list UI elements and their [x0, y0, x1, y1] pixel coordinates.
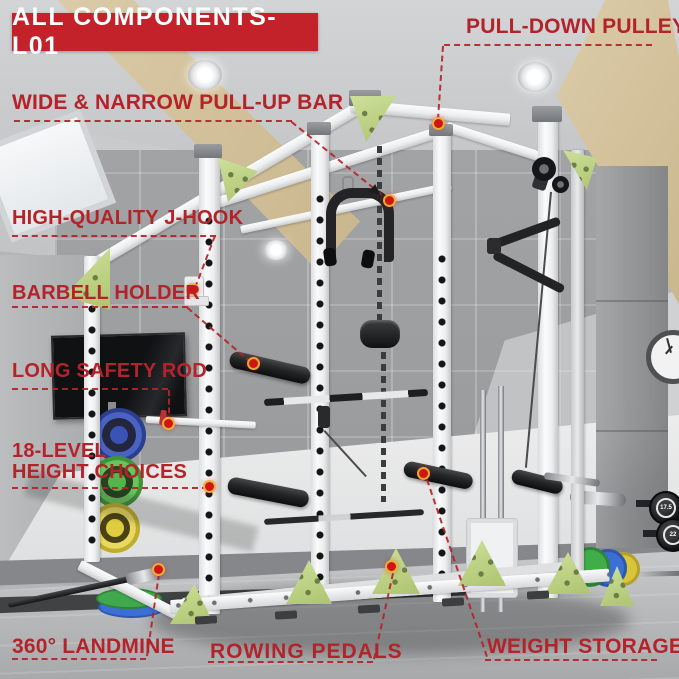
- pillar-seam-2: [596, 430, 668, 432]
- rack-foot-1: [195, 615, 217, 624]
- tricep-rope-knob-left: [323, 247, 337, 266]
- marker-weight-storage: [419, 469, 428, 478]
- leader-j-hook-h: [12, 235, 216, 237]
- upright-front-left-holes: [204, 212, 214, 602]
- chain-roller-pad: [360, 320, 400, 348]
- leader-rowing-pedals-h: [208, 661, 373, 663]
- leader-safety-rod-h: [12, 388, 168, 390]
- upright-rear-left-holes: [87, 300, 97, 548]
- leader-pull-down-pulley-h: [444, 44, 652, 46]
- title-banner-label: ALL COMPONENTS-L01: [12, 3, 318, 61]
- marker-barbell-holder: [249, 359, 258, 368]
- pillar-seam: [596, 300, 668, 302]
- label-weight-storage: WEIGHT STORAGE: [487, 636, 679, 657]
- upright-cap-front-left: [194, 144, 222, 158]
- marker-safety-rod: [164, 419, 173, 428]
- label-height-choices-line1: 18-LEVEL: [12, 441, 187, 462]
- ceiling-light-left: [188, 60, 222, 90]
- label-height-choices-line2: HEIGHT CHOICES: [12, 462, 187, 483]
- kettlebell-bottom-label: 22: [663, 525, 679, 545]
- upright-cap-tower: [532, 106, 562, 122]
- v-bar-hub: [487, 238, 501, 254]
- ceiling-light-right: [518, 62, 552, 92]
- label-pull-down-pulley: PULL-DOWN PULLEY: [466, 16, 679, 37]
- rack-foot-2: [275, 610, 297, 619]
- leader-pull-up-bar-h: [14, 120, 292, 122]
- label-barbell-holder: BARBELL HOLDER: [12, 283, 200, 304]
- marker-pull-down-pulley: [434, 119, 443, 128]
- label-pull-up-bar: WIDE & NARROW PULL-UP BAR: [12, 92, 343, 113]
- leader-landmine-h: [12, 658, 146, 660]
- leader-safety-rod-v: [168, 390, 170, 422]
- hanging-chain-lower: [381, 352, 386, 502]
- leader-barbell-holder-h: [12, 306, 188, 308]
- label-j-hook: HIGH-QUALITY J-HOOK: [12, 208, 243, 229]
- label-height-choices: 18-LEVEL HEIGHT CHOICES: [12, 441, 187, 483]
- leader-height-choices-h: [12, 487, 208, 489]
- marker-height-choices: [205, 482, 214, 491]
- kettlebell-top-label: 17.5: [656, 498, 676, 518]
- title-banner: ALL COMPONENTS-L01: [12, 13, 318, 51]
- upright-cap-mid: [307, 122, 331, 135]
- marker-rowing-pedals: [387, 562, 396, 571]
- lat-bar-pulley: [318, 406, 330, 428]
- product-image: 17.5 22: [0, 0, 679, 679]
- tricep-rope: [326, 188, 394, 262]
- rack-foot-3: [358, 604, 380, 613]
- pulley-wheel-small: [552, 176, 569, 193]
- ceiling-light-slope: [263, 240, 289, 260]
- rack-foot-5: [527, 590, 549, 599]
- marker-landmine: [154, 565, 163, 574]
- marker-pull-up-bar: [385, 196, 394, 205]
- pulley-wheel-large: [532, 157, 556, 181]
- rack-foot-4: [442, 597, 464, 606]
- upright-tower-rear: [571, 150, 584, 582]
- label-safety-rod: LONG SAFETY ROD: [12, 361, 207, 382]
- leader-weight-storage-h: [485, 659, 657, 661]
